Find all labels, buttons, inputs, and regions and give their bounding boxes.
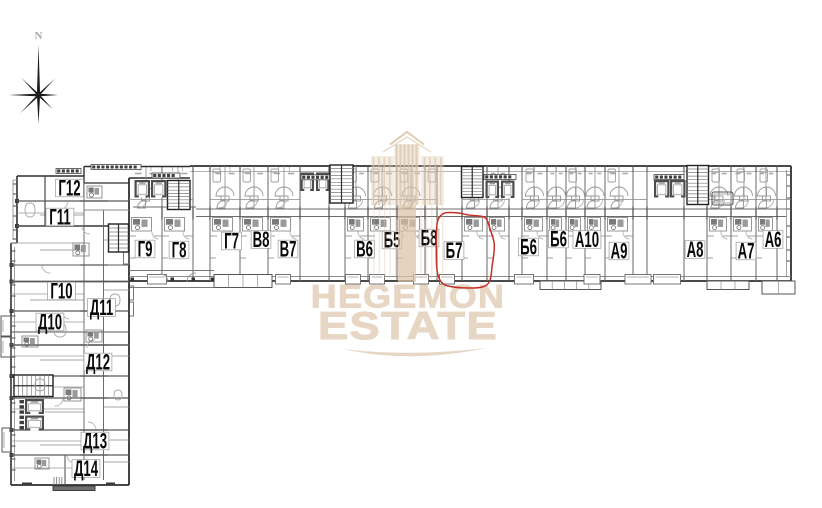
svg-text:В8: В8 bbox=[253, 228, 270, 252]
svg-text:Д12: Д12 bbox=[86, 350, 110, 374]
svg-text:А8: А8 bbox=[687, 238, 704, 262]
svg-text:Г8: Г8 bbox=[172, 238, 187, 262]
svg-text:Г9: Г9 bbox=[138, 237, 153, 261]
svg-text:Г11: Г11 bbox=[49, 205, 70, 229]
svg-text:А10: А10 bbox=[575, 228, 599, 252]
svg-text:Г7: Г7 bbox=[224, 229, 239, 253]
svg-text:Б5: Б5 bbox=[384, 228, 401, 252]
svg-text:Д11: Д11 bbox=[90, 296, 113, 320]
svg-text:А7: А7 bbox=[738, 239, 755, 263]
svg-text:Д13: Д13 bbox=[83, 429, 107, 453]
svg-text:Б6: Б6 bbox=[550, 227, 567, 251]
svg-text:N: N bbox=[35, 30, 43, 42]
svg-text:Д10: Д10 bbox=[38, 310, 62, 334]
svg-text:ESTATE: ESTATE bbox=[318, 304, 498, 347]
svg-text:Д14: Д14 bbox=[74, 457, 98, 481]
svg-text:Б8: Б8 bbox=[421, 226, 438, 250]
svg-text:Г10: Г10 bbox=[50, 279, 72, 303]
svg-text:Г12: Г12 bbox=[58, 176, 80, 200]
svg-text:А9: А9 bbox=[611, 239, 628, 263]
svg-text:В6: В6 bbox=[356, 237, 373, 261]
svg-text:В7: В7 bbox=[280, 237, 297, 261]
svg-text:А6: А6 bbox=[765, 228, 782, 252]
svg-text:Б6: Б6 bbox=[520, 235, 537, 259]
svg-text:Б7: Б7 bbox=[446, 239, 463, 263]
